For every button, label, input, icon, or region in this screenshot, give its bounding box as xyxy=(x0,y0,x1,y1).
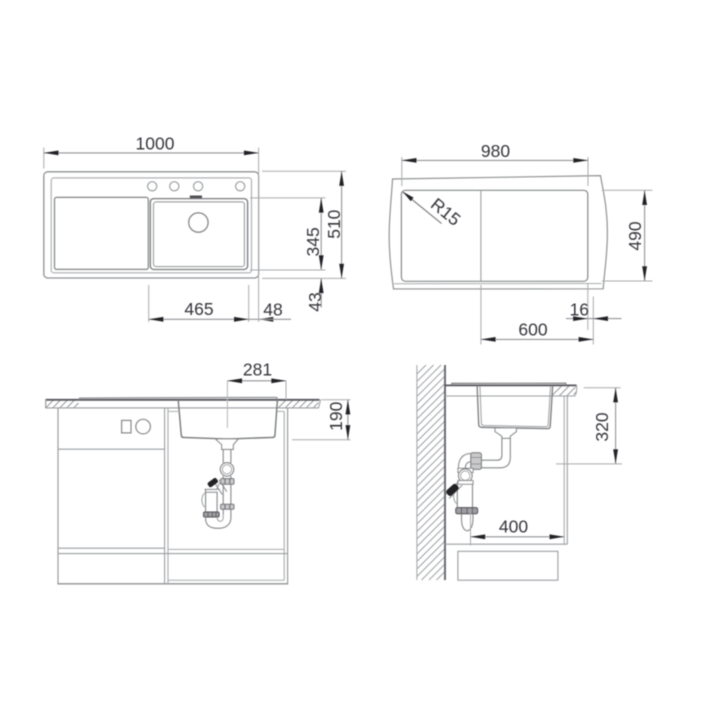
svg-text:980: 980 xyxy=(481,141,510,161)
svg-text:1000: 1000 xyxy=(136,133,175,153)
svg-text:320: 320 xyxy=(592,412,612,441)
svg-text:510: 510 xyxy=(324,209,344,238)
svg-text:16: 16 xyxy=(570,300,589,320)
svg-text:281: 281 xyxy=(243,359,272,379)
svg-text:48: 48 xyxy=(263,300,282,320)
svg-text:490: 490 xyxy=(625,221,645,250)
svg-text:400: 400 xyxy=(499,516,528,536)
svg-text:465: 465 xyxy=(184,299,213,319)
svg-text:43: 43 xyxy=(305,292,325,311)
svg-text:190: 190 xyxy=(326,401,346,430)
svg-text:345: 345 xyxy=(303,227,323,256)
svg-text:600: 600 xyxy=(518,319,547,339)
